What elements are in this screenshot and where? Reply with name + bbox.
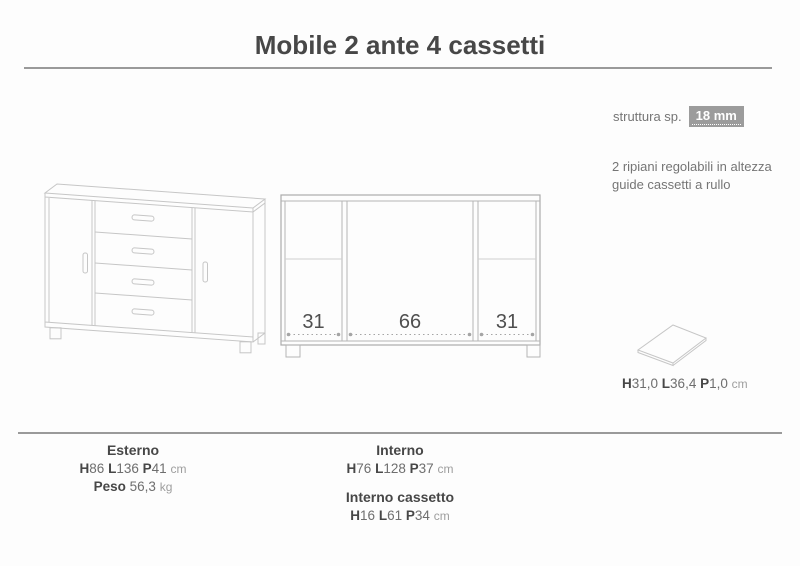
left-section-width-label: 31 (302, 311, 324, 333)
interno-h-value: 76 (356, 461, 371, 476)
shelf-unit: cm (732, 377, 748, 391)
esterno-dimensions: H86 L136 P41 cm (18, 461, 248, 476)
shelf-h-value: 31,0 (632, 376, 658, 391)
esterno-section: Esterno H86 L136 P41 cm Peso 56,3 kg (18, 442, 248, 494)
page-title: Mobile 2 ante 4 cassetti (0, 30, 800, 61)
esterno-title: Esterno (18, 442, 248, 458)
interno-cassetto-dimensions: H16 L61 P34 cm (285, 508, 515, 523)
interno-p-value: 37 (419, 461, 434, 476)
esterno-h-label: H (80, 461, 90, 476)
structure-thickness-badge: 18 mm (689, 106, 744, 127)
title-divider (24, 67, 772, 69)
cassetto-l-label: L (379, 508, 387, 523)
cassetto-h-value: 16 (360, 508, 375, 523)
shelf-h-label: H (622, 376, 632, 391)
cabinet-front-drawing (25, 175, 275, 370)
interno-dimensions: H76 L128 P37 cm (285, 461, 515, 476)
interno-h-label: H (347, 461, 357, 476)
center-section-width-label: 66 (399, 311, 421, 333)
shelf-panel-icon (630, 318, 715, 373)
shelf-p-value: 1,0 (709, 376, 728, 391)
interno-cassetto-title: Interno cassetto (285, 489, 515, 505)
peso-unit: kg (160, 480, 173, 494)
esterno-unit: cm (170, 462, 186, 476)
shelf-dimensions: H31,0 L36,4 P1,0 cm (622, 376, 748, 391)
structure-thickness-value: 18 mm (696, 108, 737, 123)
cassetto-p-value: 34 (415, 508, 430, 523)
badge-dotted-line (692, 124, 741, 125)
peso-value: 56,3 (130, 479, 156, 494)
shelf-p-label: P (700, 376, 709, 391)
peso-label: Peso (94, 479, 126, 494)
cassetto-p-label: P (406, 508, 415, 523)
structure-thickness-label: struttura sp. (613, 109, 682, 124)
esterno-l-value: 136 (116, 461, 139, 476)
shelf-panel-svg (630, 318, 715, 373)
dimension-lines (287, 333, 534, 336)
esterno-p-value: 41 (152, 461, 167, 476)
structure-thickness-row: struttura sp. 18 mm (613, 106, 744, 127)
shelf-l-value: 36,4 (670, 376, 696, 391)
interno-l-value: 128 (383, 461, 406, 476)
cassetto-l-value: 61 (387, 508, 402, 523)
features-text: 2 ripiani regolabili in altezza guide ca… (612, 158, 772, 194)
cassetto-unit: cm (434, 509, 450, 523)
shelf-l-label: L (662, 376, 670, 391)
feature-line-1: 2 ripiani regolabili in altezza (612, 158, 772, 176)
esterno-h-value: 86 (89, 461, 104, 476)
interno-title: Interno (285, 442, 515, 458)
cassetto-h-label: H (350, 508, 360, 523)
interno-unit: cm (437, 462, 453, 476)
feature-line-2: guide cassetti a rullo (612, 176, 772, 194)
footer-divider (18, 432, 782, 434)
interno-section: Interno H76 L128 P37 cm Interno cassetto… (285, 442, 515, 523)
cabinet-front-drawing-svg (25, 175, 275, 370)
peso-row: Peso 56,3 kg (18, 479, 248, 494)
cabinet-dimensions-svg: 31 66 31 (275, 188, 550, 363)
right-section-width-label: 31 (496, 311, 518, 333)
esterno-p-label: P (143, 461, 152, 476)
cabinet-dimensions-drawing: 31 66 31 (275, 188, 550, 363)
interno-p-label: P (410, 461, 419, 476)
